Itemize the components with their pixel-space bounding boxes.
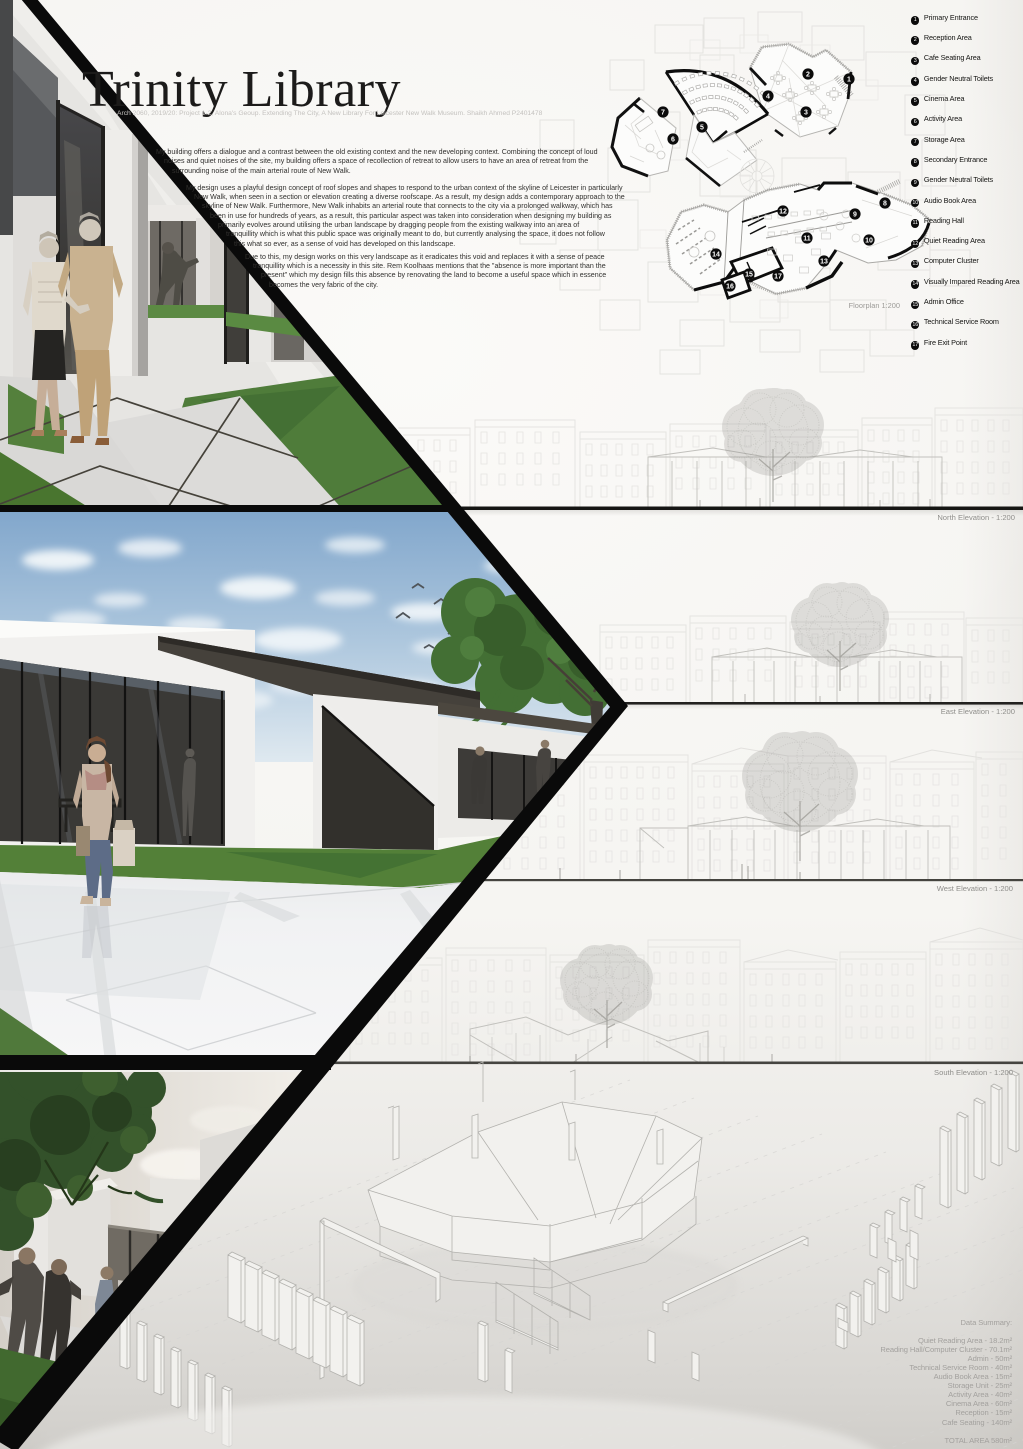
svg-text:3: 3 xyxy=(804,109,808,116)
svg-text:6: 6 xyxy=(671,136,675,143)
svg-text:13: 13 xyxy=(820,258,828,265)
svg-text:12: 12 xyxy=(779,208,787,215)
svg-text:11: 11 xyxy=(803,235,811,242)
svg-text:1: 1 xyxy=(847,76,851,83)
svg-text:4: 4 xyxy=(766,93,770,100)
svg-text:8: 8 xyxy=(883,200,887,207)
svg-text:15: 15 xyxy=(745,271,753,278)
svg-text:17: 17 xyxy=(774,273,782,280)
svg-text:9: 9 xyxy=(853,211,857,218)
svg-text:14: 14 xyxy=(712,251,720,258)
svg-text:16: 16 xyxy=(726,283,734,290)
svg-text:10: 10 xyxy=(865,237,873,244)
svg-text:5: 5 xyxy=(700,124,704,131)
svg-text:2: 2 xyxy=(806,71,810,78)
